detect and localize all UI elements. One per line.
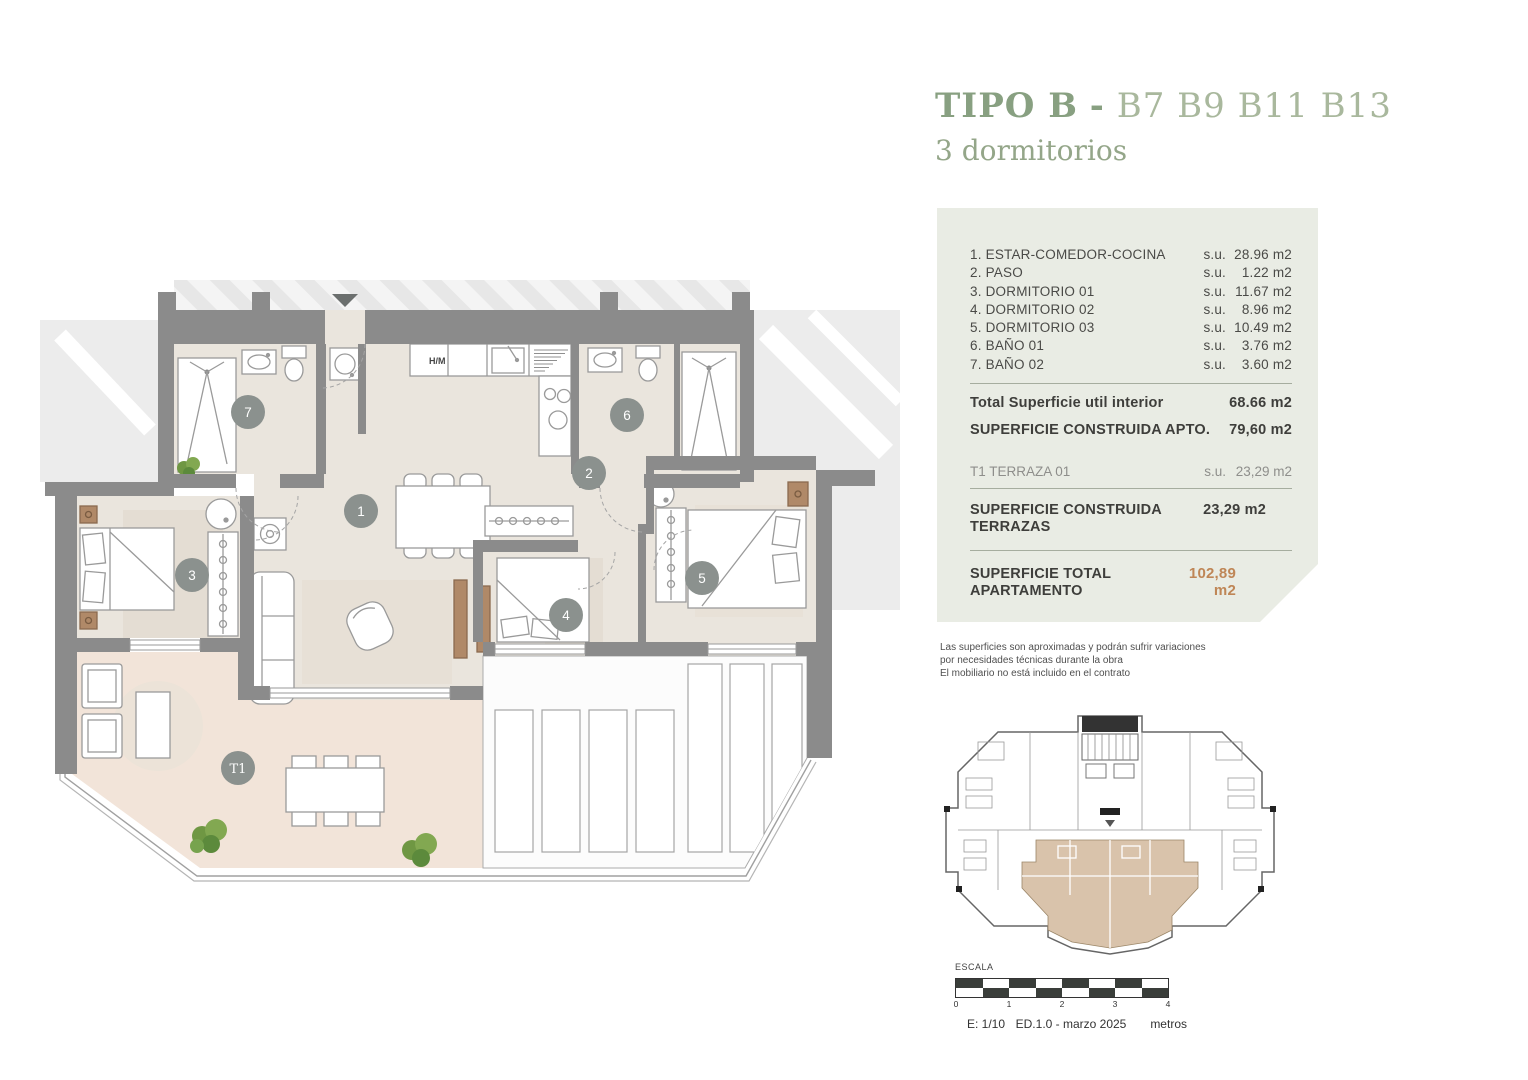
room-value: 28.96 m2 [1226, 246, 1292, 264]
svg-text:7: 7 [244, 405, 252, 420]
pillow [773, 553, 800, 583]
room-row: 6. BAÑO 01s.u.3.76 m2 [970, 337, 1292, 355]
su-label: s.u. [1196, 301, 1226, 319]
nightstand [788, 482, 808, 506]
floor-plan: H/M 1 2 3 4 5 6 7 T1 [40, 280, 900, 900]
dining-table [396, 486, 490, 548]
room-row: 2. PASOs.u.1.22 m2 [970, 264, 1292, 282]
scale-bar-graphic [955, 978, 1169, 998]
pillow [772, 516, 800, 547]
page-title: TIPO B - B7 B9 B11 B13 [935, 86, 1392, 126]
core-block [1082, 716, 1138, 732]
room-label: 7. BAÑO 02 [970, 356, 1196, 374]
scale-bar: ESCALA 0 1 2 3 4 E: 1/10 ED.1.0 - marzo … [955, 962, 1187, 1033]
nightstand [80, 612, 97, 629]
svg-text:1: 1 [357, 504, 365, 519]
terraza-su: s.u. [1196, 464, 1226, 479]
brochure-page: TIPO B - B7 B9 B11 B13 3 dormitorios 1. … [0, 0, 1528, 1080]
terraza-value: 23,29 m2 [1226, 464, 1292, 479]
terrace-coffee-table [136, 692, 170, 758]
room-row: 4. DORMITORIO 02s.u.8.96 m2 [970, 301, 1292, 319]
su-label: s.u. [1196, 264, 1226, 282]
toilet-icon [282, 346, 306, 358]
svg-text:5: 5 [698, 571, 706, 586]
key-plan-drawing [920, 690, 1300, 960]
toilet-icon [636, 346, 660, 358]
construida-terrazas-row: SUPERFICIE CONSTRUIDA TERRAZAS 23,29 m2 [970, 502, 1292, 536]
su-label: s.u. [1196, 283, 1226, 301]
total-apartamento-label: SUPERFICIE TOTAL APARTAMENTO [970, 566, 1170, 600]
hob-icon [545, 389, 556, 400]
room-marker-3: 3 [175, 558, 209, 592]
terrace-marker-t1: T1 [221, 751, 255, 785]
terrace-dining-table [286, 768, 384, 812]
room-row: 7. BAÑO 02s.u.3.60 m2 [970, 356, 1292, 374]
disclaimer: Las superficies son aproximadas y podrán… [940, 641, 1206, 680]
total-util-label: Total Superficie util interior [970, 395, 1226, 411]
type-label: TIPO B [935, 86, 1078, 126]
svg-text:6: 6 [623, 408, 631, 423]
title-separator: - [1090, 86, 1105, 126]
floor-entrance [325, 310, 365, 344]
room-row: 3. DORMITORIO 01s.u.11.67 m2 [970, 283, 1292, 301]
room-value: 3.60 m2 [1226, 356, 1292, 374]
panel-divider [970, 550, 1292, 551]
plan-edition: ED.1.0 - marzo 2025 [1016, 1017, 1127, 1031]
panel-divider [970, 383, 1292, 384]
shower-tray [178, 358, 236, 472]
pillow [83, 571, 106, 603]
svg-text:T1: T1 [230, 762, 247, 777]
room-label: 3. DORMITORIO 01 [970, 283, 1196, 301]
room-label: 2. PASO [970, 264, 1196, 282]
scale-tick: 2 [1060, 999, 1065, 1009]
construida-apto-label: SUPERFICIE CONSTRUIDA APTO. [970, 422, 1226, 438]
stool [206, 499, 236, 529]
room-marker-1: 1 [344, 494, 378, 528]
kitchen-sink-icon [492, 348, 524, 373]
scale-tick: 1 [1007, 999, 1012, 1009]
su-label: s.u. [1196, 356, 1226, 374]
room-value: 1.22 m2 [1226, 264, 1292, 282]
room-label: 5. DORMITORIO 03 [970, 319, 1196, 337]
total-apartamento-value: 102,89 m2 [1170, 565, 1236, 599]
su-label: s.u. [1196, 337, 1226, 355]
room-label: 1. ESTAR-COMEDOR-COCINA [970, 246, 1196, 264]
outside-area-left [40, 320, 158, 482]
room-marker-6: 6 [610, 398, 644, 432]
scale-unit: metros [1150, 1017, 1187, 1031]
room-value: 8.96 m2 [1226, 301, 1292, 319]
title-block: TIPO B - B7 B9 B11 B13 3 dormitorios [935, 86, 1392, 167]
pillow [82, 533, 105, 565]
total-util-value: 68.66 m2 [1226, 395, 1292, 411]
svg-text:3: 3 [188, 568, 196, 583]
nightstand [80, 506, 97, 523]
subtitle-bedrooms: 3 dormitorios [935, 134, 1392, 167]
room-marker-5: 5 [685, 561, 719, 595]
tv-sideboard [454, 580, 467, 658]
surface-panel: 1. ESTAR-COMEDOR-COCINAs.u.28.96 m2 2. P… [937, 208, 1318, 622]
terraza-row: T1 TERRAZA 01 s.u. 23,29 m2 [970, 464, 1292, 479]
room-label: 6. BAÑO 01 [970, 337, 1196, 355]
svg-text:4: 4 [562, 608, 570, 623]
room-label: 4. DORMITORIO 02 [970, 301, 1196, 319]
scale-label: ESCALA [955, 962, 1187, 972]
construida-apto-value: 79,60 m2 [1226, 422, 1292, 438]
scale-tick: 3 [1113, 999, 1118, 1009]
scale-ticks: 0 1 2 3 4 [955, 998, 1169, 1011]
kitchen-appliance-label: H/M [429, 356, 446, 366]
room-marker-4: 4 [549, 598, 583, 632]
sofa [250, 572, 294, 704]
construida-terrazas-label: SUPERFICIE CONSTRUIDA TERRAZAS [970, 502, 1200, 536]
room-row: 5. DORMITORIO 03s.u.10.49 m2 [970, 319, 1292, 337]
room-value: 10.49 m2 [1226, 319, 1292, 337]
su-label: s.u. [1196, 246, 1226, 264]
su-label: s.u. [1196, 319, 1226, 337]
construida-apto-row: SUPERFICIE CONSTRUIDA APTO. 79,60 m2 [970, 422, 1292, 438]
scale-tick: 4 [1166, 999, 1171, 1009]
room-marker-7: 7 [231, 395, 265, 429]
scale-tick: 0 [954, 999, 959, 1009]
room-value: 11.67 m2 [1226, 283, 1292, 301]
stair-core [1082, 734, 1138, 760]
disclaimer-line: El mobiliario no está incluido en el con… [940, 667, 1206, 680]
room-row: 1. ESTAR-COMEDOR-COCINAs.u.28.96 m2 [970, 246, 1292, 264]
scale-ratio: E: 1/10 [967, 1017, 1005, 1031]
disclaimer-line: por necesidades técnicas durante la obra [940, 654, 1206, 667]
terraza-label: T1 TERRAZA 01 [970, 464, 1196, 479]
entry-label-block [1100, 808, 1120, 815]
room-value: 3.76 m2 [1226, 337, 1292, 355]
disclaimer-line: Las superficies son aproximadas y podrán… [940, 641, 1206, 654]
svg-text:2: 2 [585, 466, 593, 481]
total-apartamento-row: SUPERFICIE TOTAL APARTAMENTO 102,89 m2 [970, 565, 1292, 600]
pillow [501, 616, 529, 637]
room-marker-2: 2 [572, 456, 606, 490]
unit-list: B7 B9 B11 B13 [1117, 86, 1392, 126]
floor-plan-drawing: H/M 1 2 3 4 5 6 7 T1 [40, 280, 900, 900]
key-plan [920, 690, 1300, 960]
panel-divider [970, 488, 1292, 489]
total-util-row: Total Superficie util interior 68.66 m2 [970, 395, 1292, 411]
scale-footer: E: 1/10 ED.1.0 - marzo 2025 metros [955, 1017, 1187, 1033]
construida-terrazas-value: 23,29 m2 [1200, 502, 1266, 518]
